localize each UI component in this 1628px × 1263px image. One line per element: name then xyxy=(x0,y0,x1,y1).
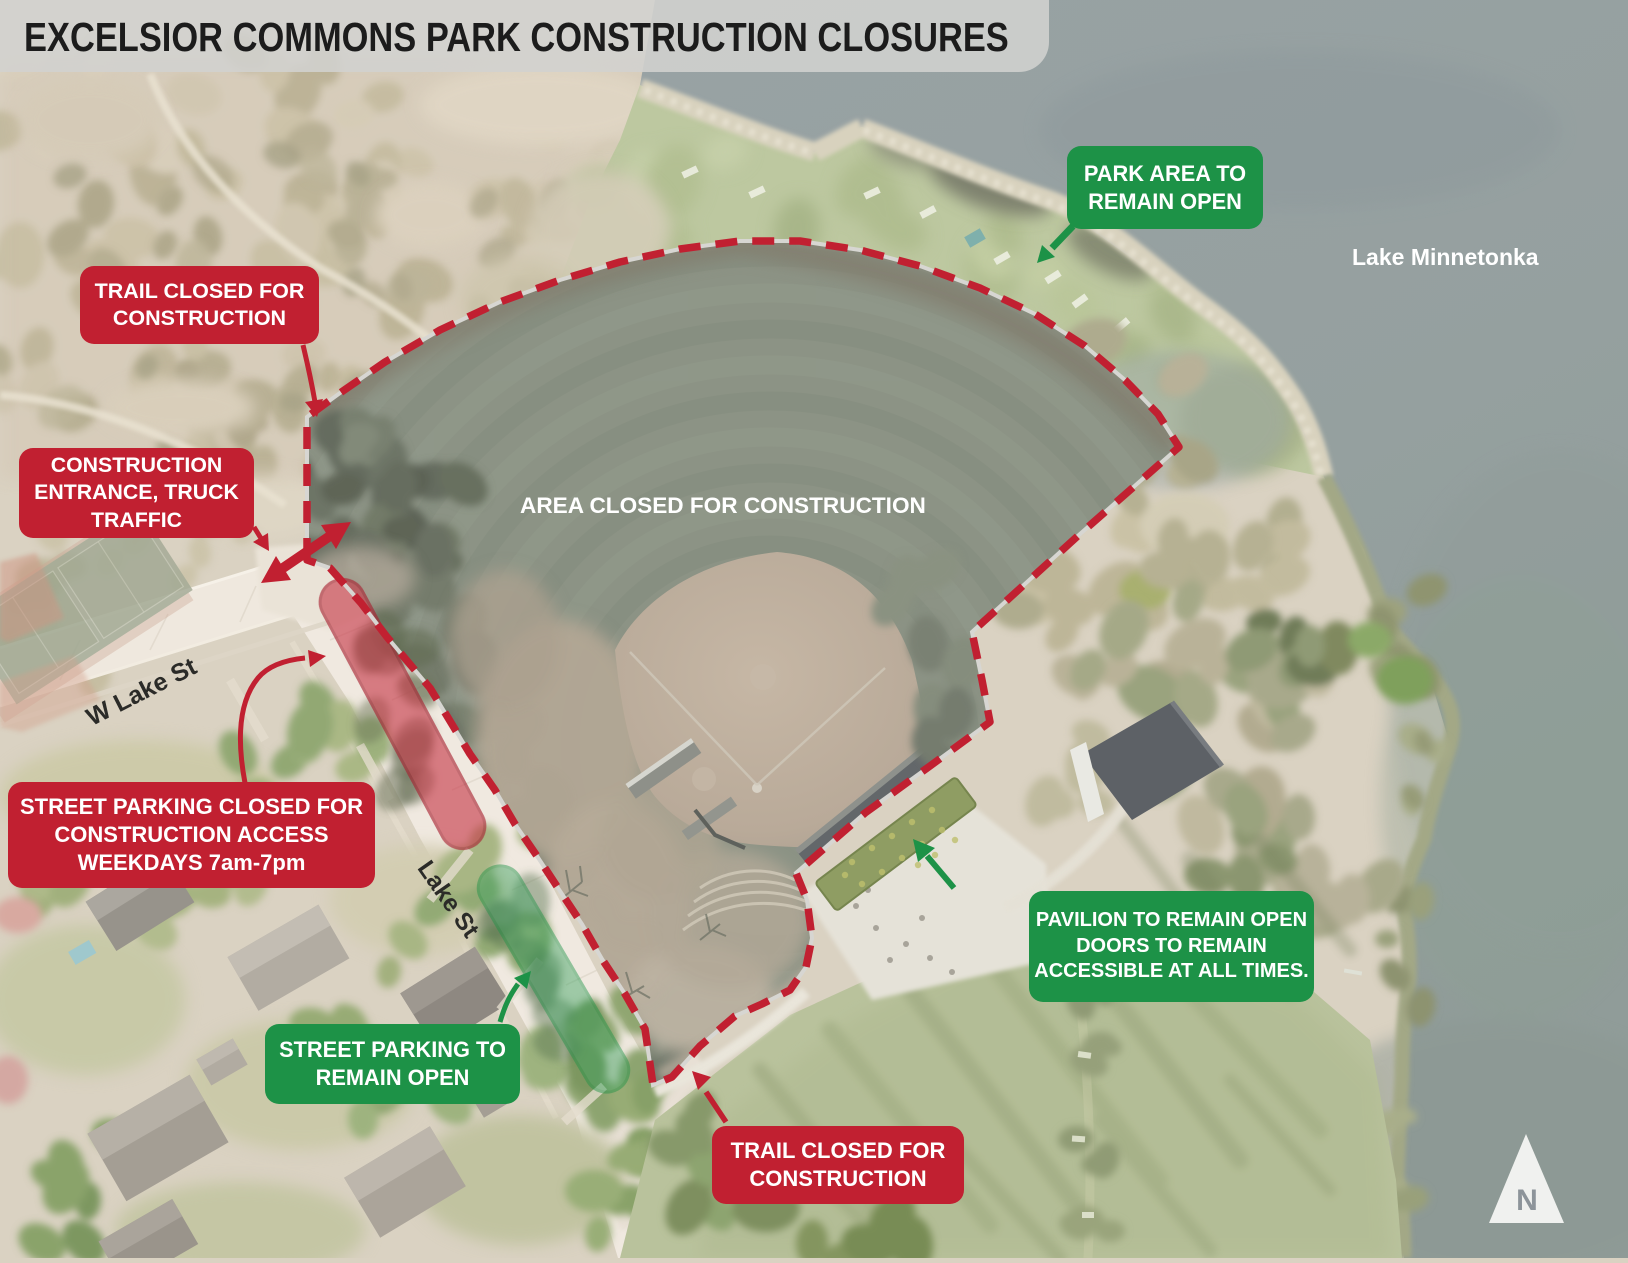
svg-text:N: N xyxy=(1516,1184,1538,1217)
